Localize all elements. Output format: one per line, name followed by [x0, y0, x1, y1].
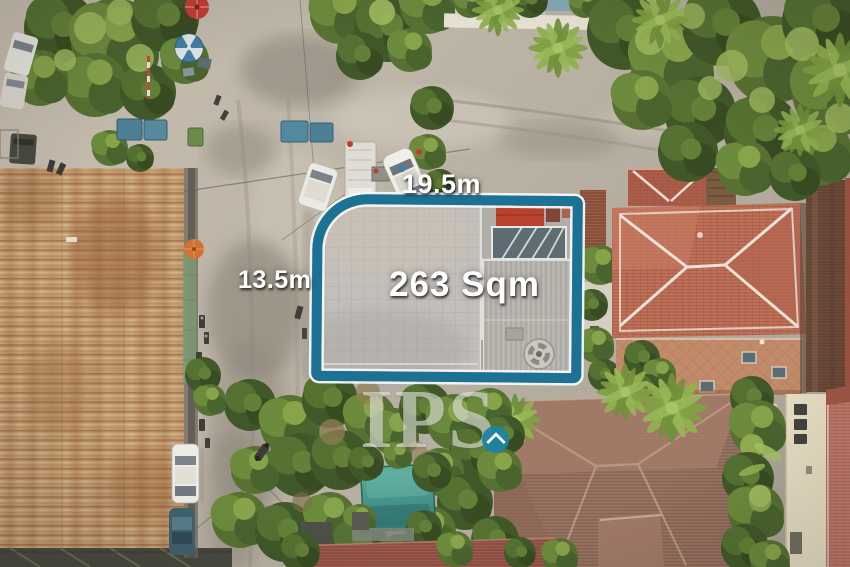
aerial-photo: 19.5m 13.5m 263 Sqm IPS: [0, 0, 850, 567]
side-dimension-label: 13.5m: [238, 268, 311, 293]
chevron-up-icon: [486, 432, 506, 452]
watermark-logo-circle: [482, 426, 509, 453]
plot-area-label: 263 Sqm: [389, 267, 540, 302]
frontage-dimension-label: 19.5m: [402, 171, 481, 198]
watermark-brand-text: IPS: [360, 378, 497, 462]
